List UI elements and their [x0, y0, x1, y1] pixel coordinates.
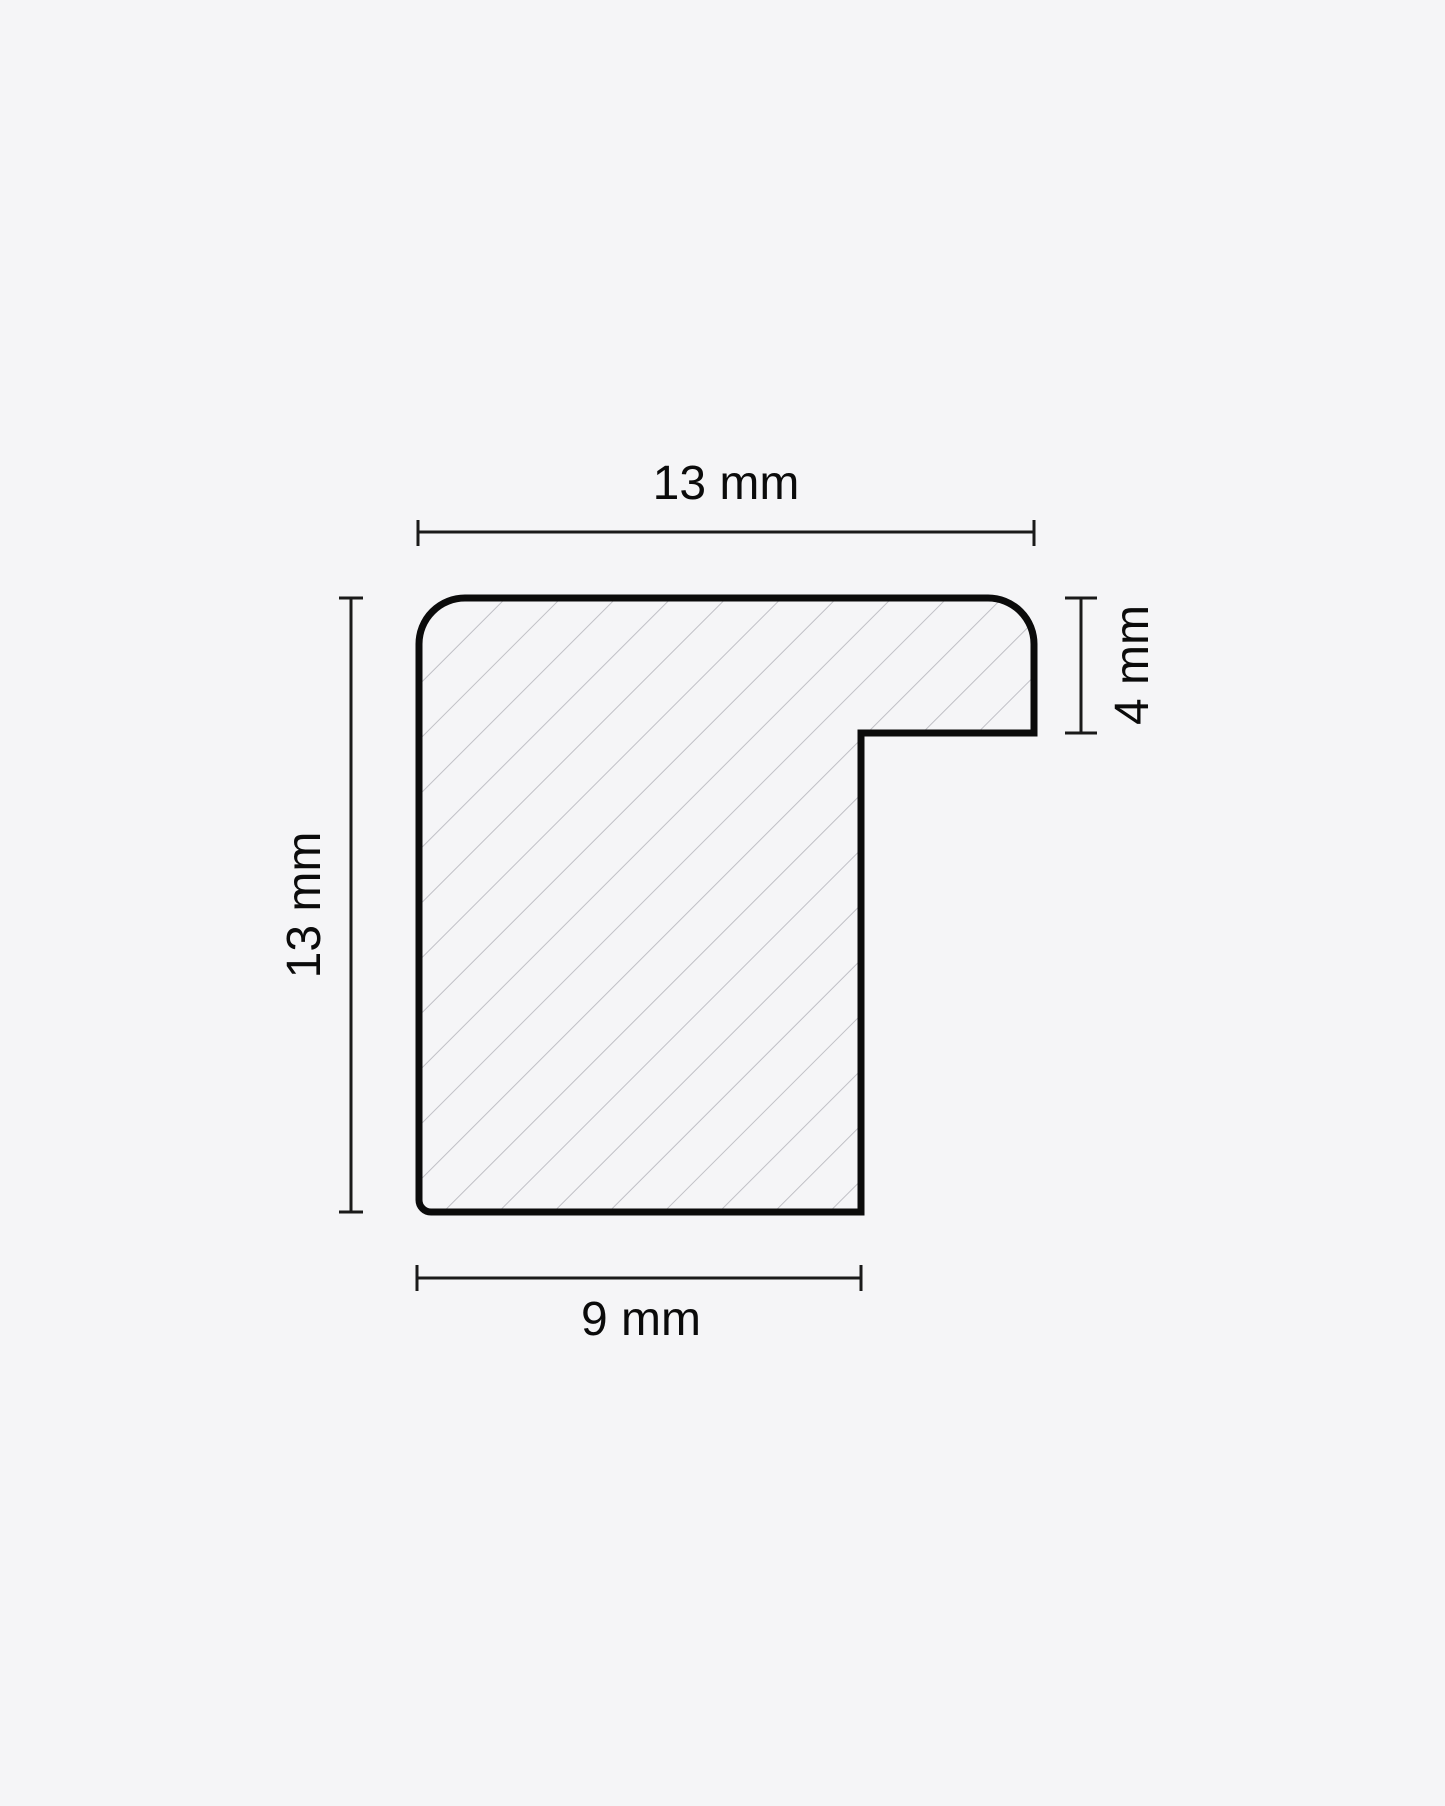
dim-label-left-height: 13 mm	[281, 832, 329, 979]
dimension-left-height	[339, 598, 363, 1212]
dimension-bottom-width	[417, 1265, 861, 1291]
dim-label-rabbet-depth: 4 mm	[1109, 605, 1157, 725]
dimension-rabbet-depth	[1065, 598, 1097, 733]
profile-cross-section-shape	[419, 598, 1034, 1212]
dim-label-top-width: 13 mm	[653, 460, 800, 508]
dim-label-bottom-width: 9 mm	[581, 1296, 701, 1344]
dimension-top-width	[418, 520, 1034, 546]
moulding-profile-diagram: 13 mm 13 mm 4 mm 9 mm	[0, 0, 1445, 1806]
profile-drawing-svg	[0, 0, 1445, 1806]
